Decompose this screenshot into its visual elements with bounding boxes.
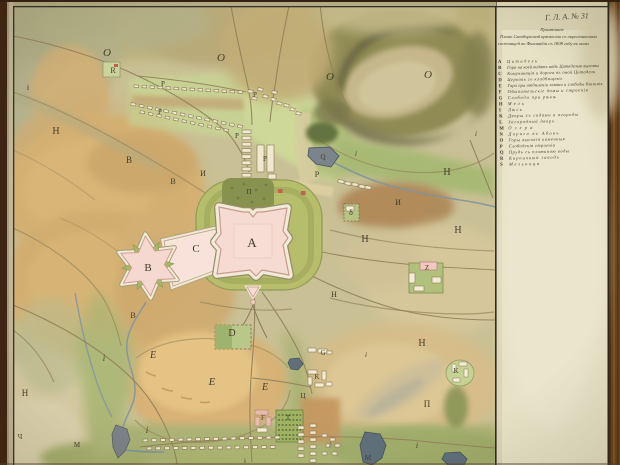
svg-text:G: G <box>499 96 503 101</box>
svg-text:Ч: Ч <box>18 433 23 441</box>
svg-text:Планъ Свеаборгской крѣпости съ: Планъ Свеаборгской крѣпости съ окрестнос… <box>499 34 598 39</box>
svg-text:E: E <box>261 382 268 393</box>
svg-text:δ: δ <box>349 208 353 217</box>
svg-text:i: i <box>475 130 477 138</box>
svg-text:B: B <box>170 177 175 186</box>
svg-text:K: K <box>453 367 458 375</box>
svg-text:M: M <box>499 127 504 132</box>
svg-text:B: B <box>144 262 151 274</box>
svg-text:M: M <box>365 454 372 462</box>
svg-text:Примѣчаніе: Примѣчаніе <box>539 27 564 32</box>
svg-text:Q: Q <box>500 151 504 156</box>
svg-text:B: B <box>126 155 132 165</box>
svg-text:H: H <box>331 290 337 299</box>
svg-text:O: O <box>326 71 334 83</box>
svg-text:I: I <box>499 108 501 113</box>
svg-text:S: S <box>500 163 503 168</box>
svg-text:P: P <box>161 80 165 88</box>
svg-text:H: H <box>52 126 59 137</box>
svg-text:P: P <box>158 108 162 116</box>
svg-text:Кирпичный заводъ: Кирпичный заводъ <box>508 155 560 161</box>
svg-text:И: И <box>200 169 206 178</box>
svg-text:F: F <box>499 90 502 95</box>
svg-text:P: P <box>315 170 320 179</box>
svg-text:i: i <box>365 351 367 359</box>
svg-text:P: P <box>500 145 503 150</box>
svg-text:Слобода при рѣкѣ: Слобода при рѣкѣ <box>508 94 556 100</box>
svg-text:Ц: Ц <box>300 392 305 400</box>
svg-text:E: E <box>208 376 216 388</box>
svg-text:H: H <box>499 102 503 107</box>
svg-text:H: H <box>418 338 425 349</box>
svg-text:i: i <box>329 441 331 449</box>
svg-text:П: П <box>424 399 431 409</box>
svg-text:E: E <box>149 350 156 361</box>
svg-text:K: K <box>499 114 503 119</box>
svg-text:R: R <box>110 66 116 75</box>
svg-text:H: H <box>443 167 450 178</box>
svg-text:O: O <box>103 47 111 59</box>
svg-text:O: O <box>500 139 504 144</box>
svg-text:Лѣсъ: Лѣсъ <box>507 107 523 112</box>
svg-text:H: H <box>22 388 29 398</box>
svg-text:состоящей въ Финляндіи съ 1808: состоящей въ Финляндіи съ 1808 году въ о… <box>498 41 589 46</box>
svg-text:G: G <box>320 349 325 357</box>
svg-text:i: i <box>355 150 357 158</box>
svg-text:i: i <box>416 441 418 450</box>
svg-text:T: T <box>286 414 291 422</box>
svg-text:B: B <box>130 311 135 320</box>
svg-text:П: П <box>246 188 251 196</box>
svg-text:O: O <box>424 69 432 81</box>
svg-text:O: O <box>217 52 225 64</box>
svg-text:Слободскія строенія: Слободскія строенія <box>509 143 555 149</box>
svg-text:P: P <box>253 91 257 99</box>
svg-text:P: P <box>235 132 239 140</box>
svg-text:Q: Q <box>320 153 325 161</box>
svg-text:Z: Z <box>425 264 429 272</box>
svg-text:M: M <box>74 441 81 449</box>
svg-text:F: F <box>261 414 265 422</box>
svg-text:D: D <box>228 328 235 339</box>
svg-text:Загородный дворъ: Загородный дворъ <box>508 118 555 124</box>
svg-text:E: E <box>498 84 501 89</box>
svg-text:P: P <box>263 155 267 163</box>
svg-text:A: A <box>247 235 257 250</box>
svg-text:H: H <box>454 225 461 236</box>
svg-text:L: L <box>499 120 502 125</box>
svg-text:H: H <box>361 234 368 245</box>
svg-text:Мель: Мель <box>507 101 524 106</box>
svg-text:K: K <box>314 373 319 381</box>
svg-text:C: C <box>192 243 199 255</box>
svg-text:И: И <box>395 198 401 207</box>
